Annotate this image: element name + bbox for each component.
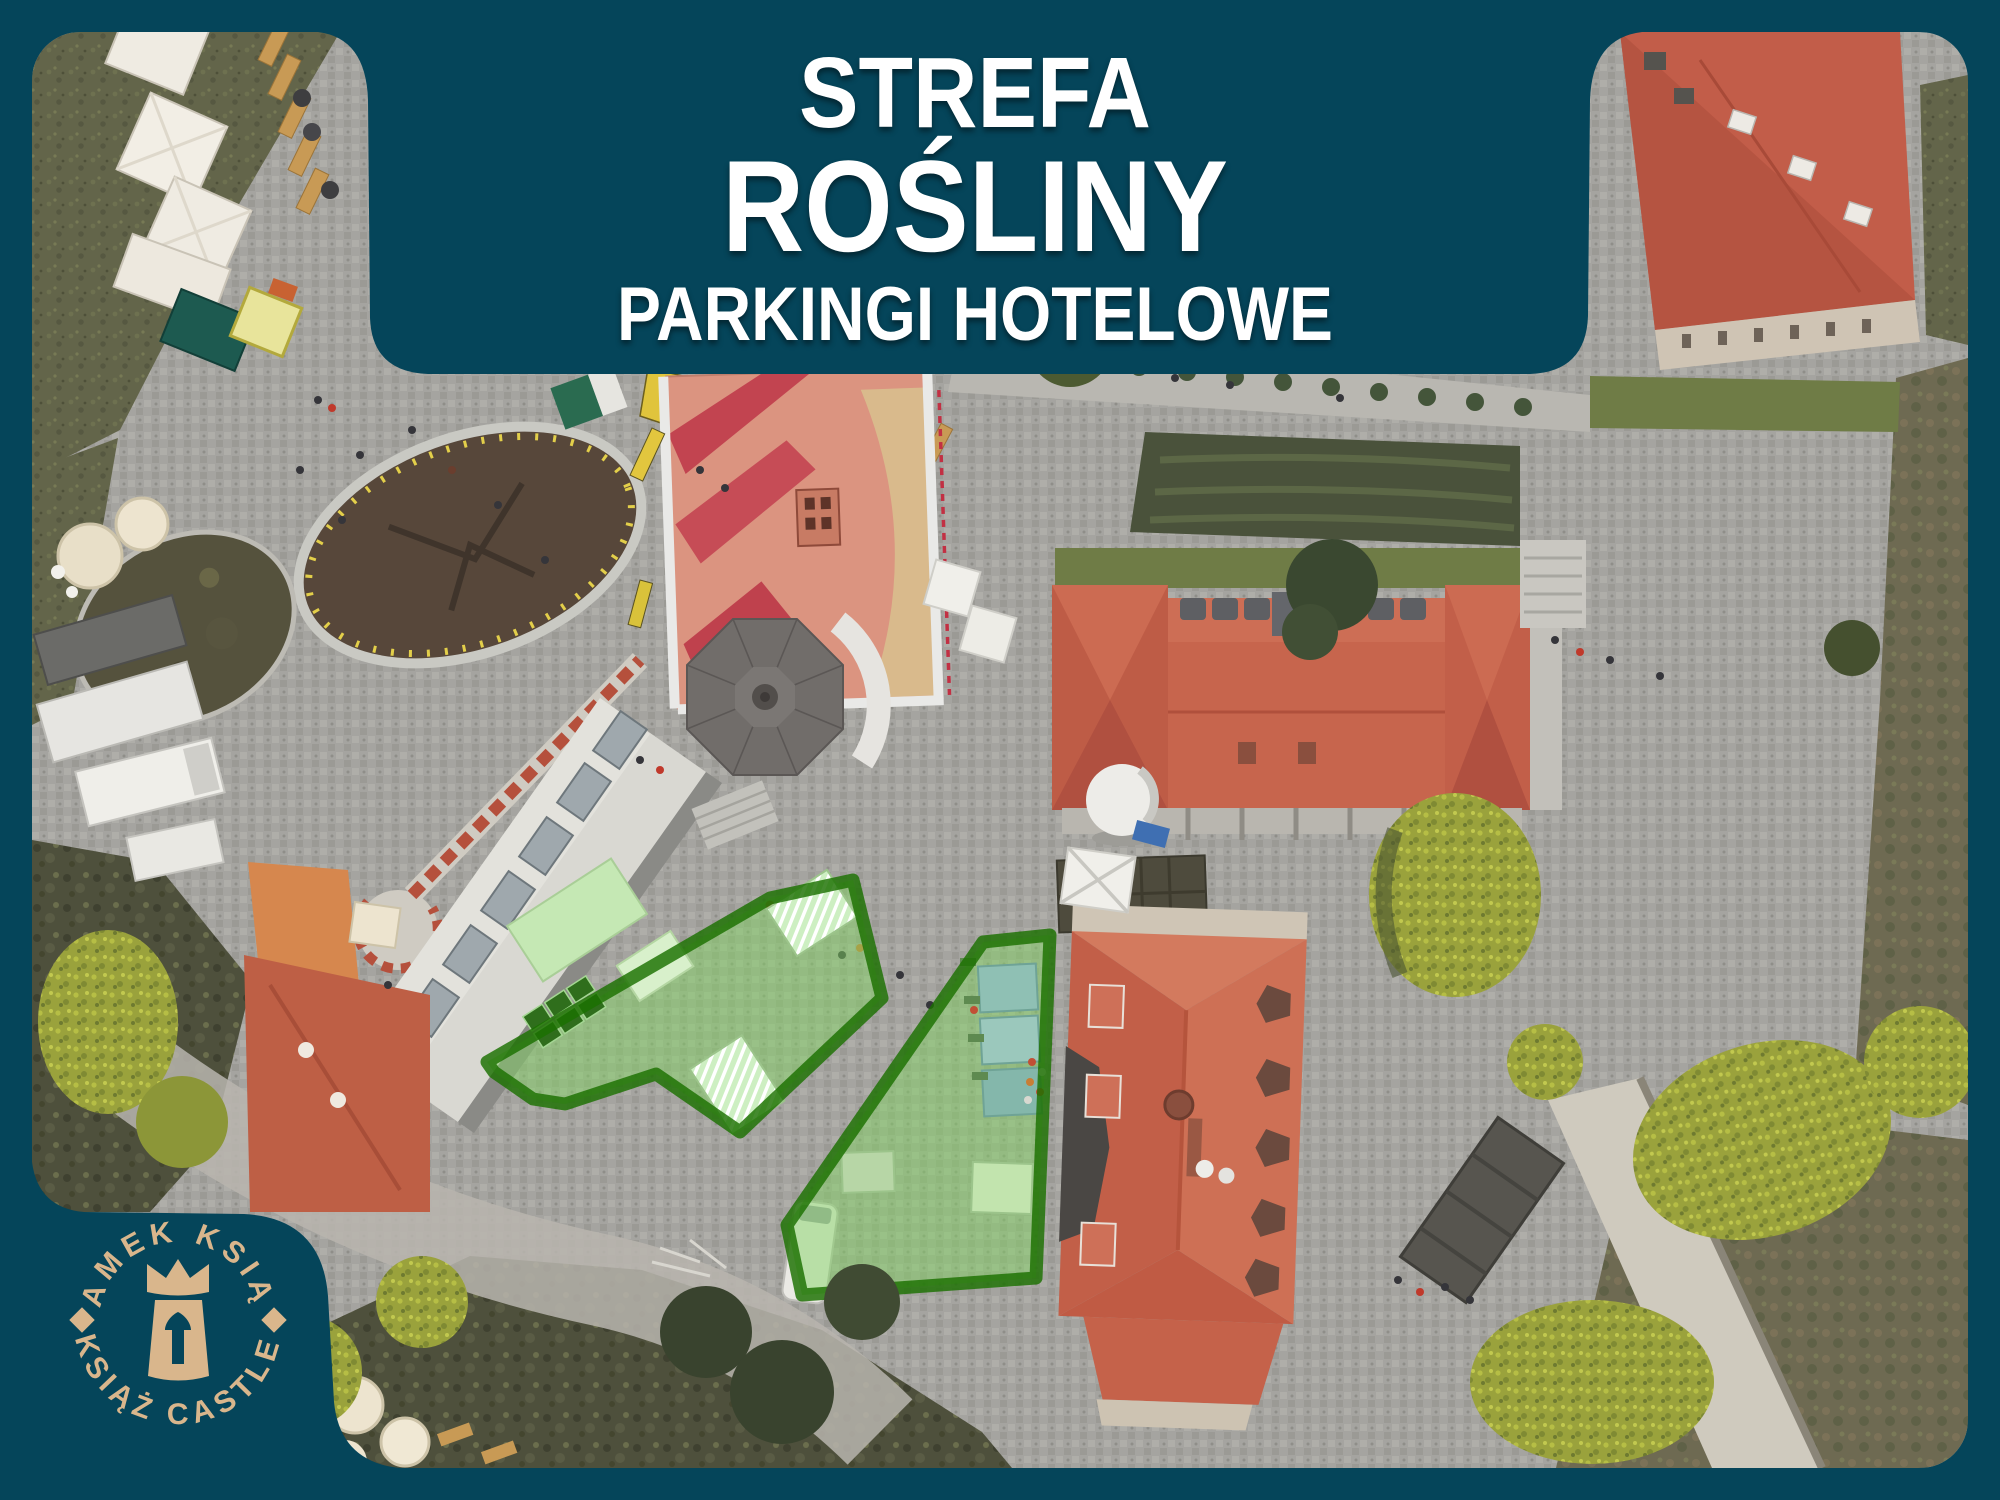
title-line-2: ROŚLINY [722, 133, 1228, 279]
umbrella [58, 524, 122, 588]
aerial-photo: STREFA ROŚLINY PARKINGI HOTELOWE ZAMEK K… [0, 0, 2000, 1500]
lawn-top-right [1590, 376, 1900, 432]
castle-tower-icon [147, 1259, 209, 1381]
poster: STREFA ROŚLINY PARKINGI HOTELOWE ZAMEK K… [0, 0, 2000, 1500]
title-line-3: PARKINGI HOTELOWE [617, 272, 1333, 357]
umbrella [116, 498, 168, 550]
